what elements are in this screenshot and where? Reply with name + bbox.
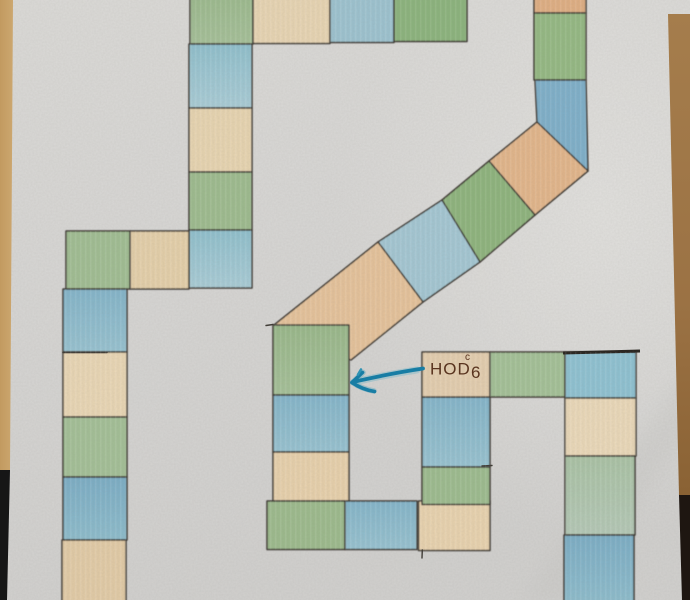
svg-text:6: 6: [471, 363, 480, 382]
svg-text:c: c: [465, 352, 470, 363]
